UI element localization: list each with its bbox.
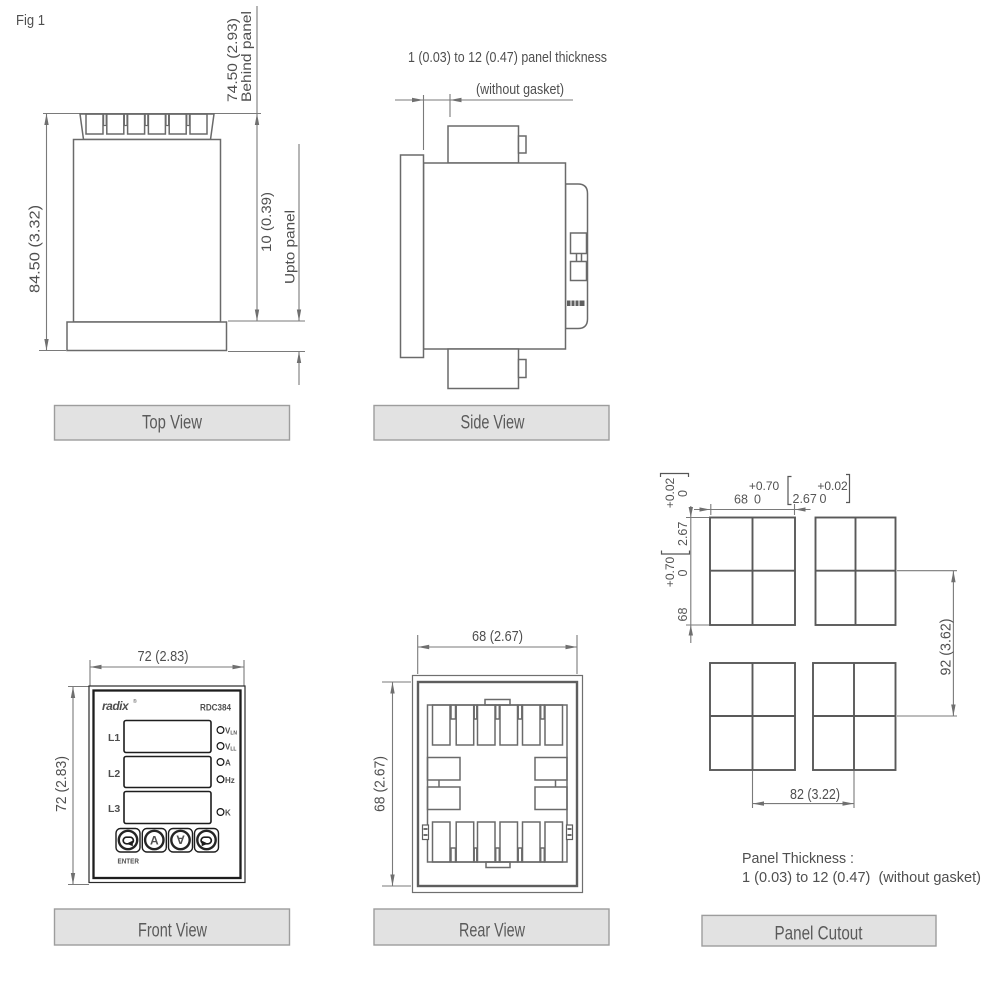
svg-text:+0.02: +0.02	[663, 477, 677, 508]
svg-text:92 (3.62): 92 (3.62)	[939, 619, 955, 676]
svg-text:K: K	[225, 809, 231, 818]
svg-text:10 (0.39): 10 (0.39)	[259, 192, 274, 252]
svg-text:0: 0	[820, 492, 827, 506]
svg-text:+0.70: +0.70	[749, 479, 780, 493]
svg-text:68: 68	[676, 608, 690, 622]
svg-text:L3: L3	[108, 803, 120, 815]
svg-text:72 (2.83): 72 (2.83)	[54, 756, 70, 812]
svg-text:Panel Thickness :: Panel Thickness :	[742, 850, 854, 867]
svg-text:68 (2.67): 68 (2.67)	[373, 756, 389, 812]
svg-text:74.50 (2.93): 74.50 (2.93)	[225, 18, 240, 102]
svg-text:Side View: Side View	[461, 413, 525, 434]
svg-text:ENTER: ENTER	[118, 857, 140, 866]
svg-text:+0.02: +0.02	[817, 479, 848, 493]
svg-text:Hz: Hz	[225, 776, 235, 785]
svg-text:2.67: 2.67	[793, 492, 817, 506]
svg-text:A: A	[176, 833, 185, 847]
svg-text:1 (0.03) to 12 (0.47) panel th: 1 (0.03) to 12 (0.47) panel thickness	[408, 49, 607, 66]
svg-text:72 (2.83): 72 (2.83)	[138, 648, 189, 665]
svg-text:1 (0.03) to 12 (0.47) (withou: 1 (0.03) to 12 (0.47) (without gasket)	[742, 869, 981, 886]
svg-text:Rear View: Rear View	[459, 921, 525, 942]
svg-text:68 (2.67): 68 (2.67)	[472, 628, 523, 645]
svg-text:Panel Cutout: Panel Cutout	[775, 924, 864, 945]
svg-text:A: A	[150, 834, 159, 848]
svg-text:2.67: 2.67	[676, 522, 690, 546]
svg-text:Fig 1: Fig 1	[16, 12, 45, 29]
svg-text:0: 0	[676, 490, 690, 497]
svg-text:Front View: Front View	[138, 921, 207, 942]
svg-text:84.50 (3.32): 84.50 (3.32)	[27, 205, 44, 293]
svg-text:radix: radix	[102, 699, 130, 713]
svg-text:Upto panel: Upto panel	[283, 210, 298, 284]
svg-text:0: 0	[676, 569, 690, 576]
svg-text:A: A	[225, 759, 231, 768]
svg-text:L1: L1	[108, 732, 120, 744]
svg-text:®: ®	[133, 698, 137, 705]
svg-text:0: 0	[754, 493, 761, 507]
svg-text:82 (3.22): 82 (3.22)	[790, 786, 840, 803]
svg-text:+0.70: +0.70	[663, 556, 677, 587]
svg-text:Top View: Top View	[142, 413, 202, 434]
svg-text:Behind panel: Behind panel	[239, 11, 254, 102]
svg-text:L2: L2	[108, 768, 120, 780]
svg-text:68: 68	[734, 493, 748, 507]
svg-text:RDC384: RDC384	[200, 703, 231, 713]
svg-text:(without gasket): (without gasket)	[476, 81, 564, 98]
